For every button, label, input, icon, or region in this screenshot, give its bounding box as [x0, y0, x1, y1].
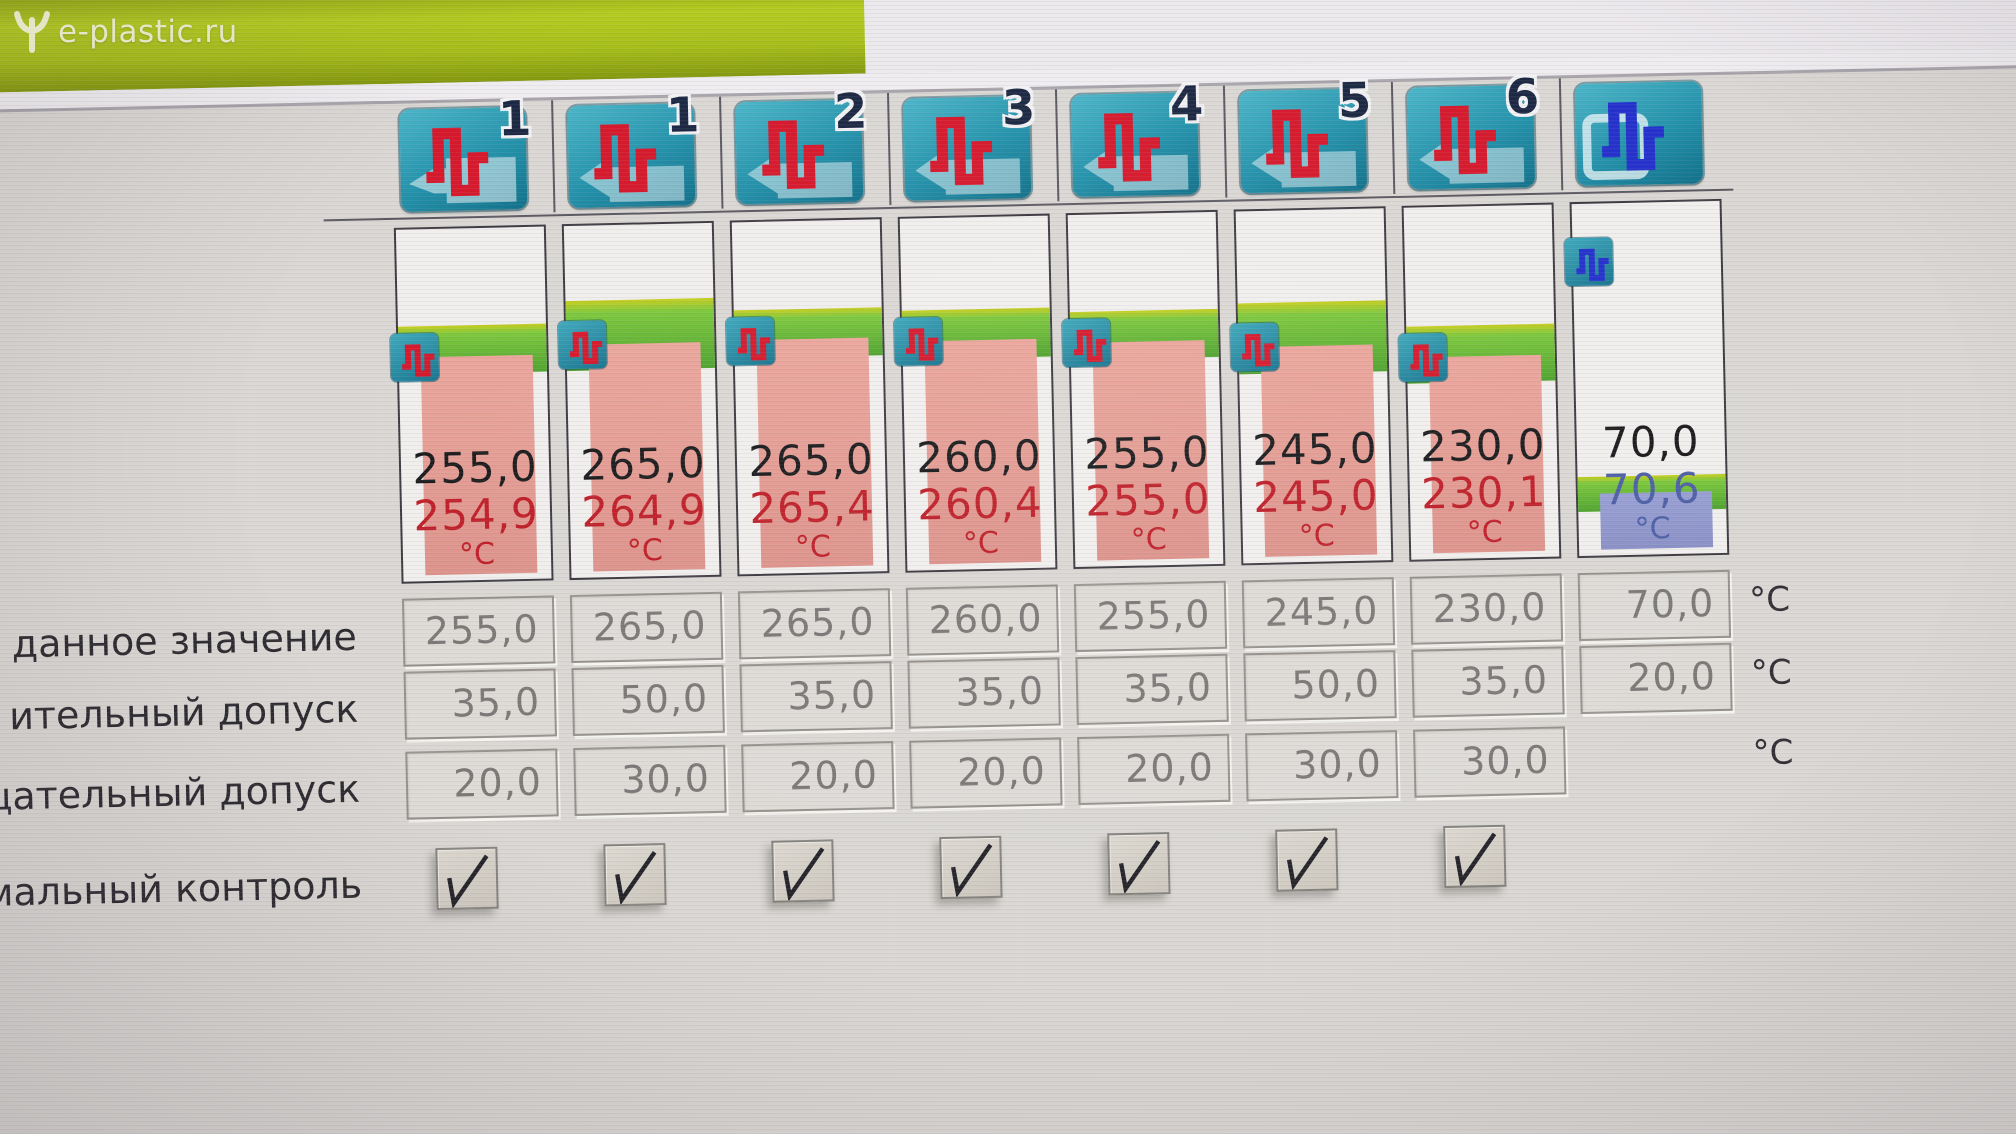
bar-readout: 265,0264,9°C	[569, 439, 720, 570]
neg-tolerance-field-zone-7[interactable]: 30,0	[1413, 726, 1566, 797]
actual-value-text: 70,6	[1577, 465, 1726, 514]
column-divider	[1391, 82, 1395, 194]
pos-tolerance-field-zone-4[interactable]: 35,0	[907, 657, 1060, 728]
heater-zone-icon-6[interactable]: 5	[1239, 89, 1367, 194]
unit-text: °C	[907, 525, 1056, 562]
heater-zone-icon-2[interactable]: 1	[567, 103, 695, 208]
unit-label-row-set: °C	[1749, 579, 1791, 620]
check-icon	[437, 849, 496, 908]
pos-tolerance-field-zone-3[interactable]: 35,0	[739, 661, 892, 732]
set-value-field-zone-5[interactable]: 255,0	[1074, 581, 1227, 652]
neg-tolerance-field-zone-2[interactable]: 30,0	[573, 745, 726, 816]
actual-value-text: 230,1	[1409, 469, 1558, 518]
check-icon	[1277, 830, 1336, 889]
set-value-text: 245,0	[1240, 424, 1389, 475]
neg-tolerance-field-zone-1[interactable]: 20,0	[405, 748, 558, 819]
zone-icon-cell-3: 2	[727, 97, 881, 206]
thermal-monitoring-checkbox-zone-7[interactable]	[1443, 825, 1506, 888]
icon-number-badge: 2	[833, 83, 868, 140]
heater-zone-icon-7[interactable]: 6	[1407, 85, 1535, 190]
set-value-field-zone-3[interactable]: 265,0	[738, 588, 891, 659]
zone-icon-cell-4: 3	[895, 94, 1049, 203]
bar-readout: 70,070,6°C	[1576, 417, 1727, 548]
pos-tolerance-field-zone-2[interactable]: 50,0	[571, 665, 724, 736]
zone-icon-cell-1: 1	[391, 105, 545, 214]
set-value-field-zone-4[interactable]: 260,0	[906, 584, 1059, 655]
pos-tolerance-field-zone-1[interactable]: 35,0	[404, 668, 557, 739]
hmi-screen: 1 255,0254,9°C255,035,020,0 1 265,0264,9…	[0, 0, 2016, 1134]
neg-tolerance-field-zone-4[interactable]: 20,0	[909, 737, 1062, 808]
check-icon	[773, 841, 832, 900]
column-divider	[551, 100, 555, 212]
temperature-bar-zone-4: 260,0260,4°C	[898, 214, 1058, 573]
icon-number-badge: 6	[1505, 69, 1540, 126]
thermal-monitoring-checkbox-zone-6[interactable]	[1275, 828, 1338, 891]
heater-badge-icon	[1398, 332, 1447, 381]
temperature-bar-zone-3: 265,0265,4°C	[730, 217, 890, 576]
actual-value-text: 245,0	[1241, 472, 1390, 521]
column-divider	[1559, 78, 1563, 190]
zone-icon-cell-7: 6	[1399, 83, 1553, 192]
zone-icon-cell-6: 5	[1231, 86, 1385, 195]
unit-text: °C	[739, 529, 888, 566]
column-divider	[1055, 89, 1059, 201]
heater-zone-icon-4[interactable]: 3	[903, 96, 1031, 201]
thermal-monitoring-checkbox-zone-1[interactable]	[435, 847, 498, 910]
pos-tolerance-field-zone-8[interactable]: 20,0	[1579, 643, 1732, 714]
cooling-badge-icon	[1564, 237, 1613, 286]
check-icon	[941, 838, 1000, 897]
photo-frame: 1 255,0254,9°C255,035,020,0 1 265,0264,9…	[0, 0, 2016, 1134]
thermal-monitoring-checkbox-zone-3[interactable]	[771, 839, 834, 902]
column-divider	[719, 97, 723, 209]
label-neg-tolerance: цательный допуск	[0, 766, 387, 819]
unit-text: °C	[1074, 522, 1223, 559]
bar-readout: 260,0260,4°C	[904, 432, 1055, 563]
heater-zone-icon-3[interactable]: 2	[735, 100, 863, 205]
cooling-zone-icon-8[interactable]	[1575, 81, 1703, 186]
zone-icon-cell-5: 4	[1063, 90, 1217, 199]
unit-label-row-pos: °C	[1750, 652, 1792, 693]
column-divider	[1223, 86, 1227, 198]
temperature-bar-zone-8: 70,070,6°C	[1570, 199, 1730, 558]
column-divider	[887, 93, 891, 205]
neg-tolerance-field-zone-3[interactable]: 20,0	[741, 741, 894, 812]
zone-icon-cell-2: 1	[559, 101, 713, 210]
temperature-bar-zone-1: 255,0254,9°C	[394, 225, 554, 584]
actual-value-text: 255,0	[1073, 476, 1222, 525]
neg-tolerance-field-zone-6[interactable]: 30,0	[1245, 730, 1398, 801]
set-value-field-zone-8[interactable]: 70,0	[1578, 570, 1731, 641]
pos-tolerance-field-zone-6[interactable]: 50,0	[1243, 650, 1396, 721]
temperature-bar-zone-7: 230,0230,1°C	[1402, 203, 1562, 562]
set-value-text: 260,0	[904, 432, 1053, 483]
neg-tolerance-field-zone-5[interactable]: 20,0	[1077, 734, 1230, 805]
label-thermal-monitoring: мальный контроль	[0, 862, 389, 915]
heater-zone-icon-1[interactable]: 1	[399, 107, 527, 212]
thermal-monitoring-checkbox-zone-5[interactable]	[1107, 832, 1170, 895]
pos-tolerance-field-zone-7[interactable]: 35,0	[1411, 646, 1564, 717]
label-set-value: данное значение	[0, 614, 383, 667]
unit-text: °C	[1242, 518, 1391, 555]
set-value-field-zone-6[interactable]: 245,0	[1242, 577, 1395, 648]
pos-tolerance-field-zone-5[interactable]: 35,0	[1075, 654, 1228, 725]
temperature-bar-zone-6: 245,0245,0°C	[1234, 206, 1394, 565]
icon-number-badge: 1	[497, 91, 532, 148]
set-value-text: 230,0	[1408, 421, 1557, 472]
bar-readout: 255,0254,9°C	[401, 443, 552, 574]
zone-icon-cell-8	[1567, 79, 1721, 188]
unit-text: °C	[403, 536, 552, 573]
bar-readout: 245,0245,0°C	[1240, 424, 1391, 555]
actual-value-text: 260,4	[906, 480, 1055, 529]
check-icon	[1109, 834, 1168, 893]
heater-badge-icon	[726, 316, 775, 365]
set-value-text: 70,0	[1576, 417, 1725, 468]
temperature-bar-zone-2: 265,0264,9°C	[562, 221, 722, 580]
unit-text: °C	[571, 533, 720, 570]
actual-value-text: 254,9	[402, 490, 551, 539]
heater-badge-icon	[894, 317, 943, 366]
heater-zone-icon-5[interactable]: 4	[1071, 92, 1199, 197]
actual-value-text: 265,4	[738, 483, 887, 532]
label-pos-tolerance: ительный допуск	[0, 686, 385, 739]
bar-readout: 255,0255,0°C	[1072, 428, 1223, 559]
temperature-bar-zone-5: 255,0255,0°C	[1066, 210, 1226, 569]
set-value-text: 255,0	[401, 443, 550, 494]
unit-text: °C	[1410, 514, 1559, 551]
icon-number-badge: 5	[1337, 72, 1372, 129]
set-value-field-zone-1[interactable]: 255,0	[402, 595, 555, 666]
set-value-text: 265,0	[736, 435, 885, 486]
set-value-text: 265,0	[569, 439, 718, 490]
unit-label-row-neg: °C	[1752, 732, 1794, 773]
check-icon	[1445, 827, 1504, 886]
bar-readout: 230,0230,1°C	[1408, 421, 1559, 552]
icon-number-badge: 3	[1001, 80, 1036, 137]
unit-text: °C	[1578, 511, 1727, 548]
watermark-logo-icon	[12, 10, 52, 54]
thermal-monitoring-checkbox-zone-4[interactable]	[939, 836, 1002, 899]
check-icon	[605, 845, 664, 904]
watermark: e-plastic.ru	[12, 10, 238, 54]
set-value-field-zone-7[interactable]: 230,0	[1410, 573, 1563, 644]
heater-badge-icon	[1230, 323, 1279, 372]
icon-number-badge: 4	[1169, 76, 1204, 133]
watermark-text: e-plastic.ru	[58, 14, 238, 50]
icon-number-badge: 1	[665, 87, 700, 144]
heater-badge-icon	[558, 320, 607, 369]
set-value-field-zone-2[interactable]: 265,0	[570, 592, 723, 663]
actual-value-text: 264,9	[570, 487, 719, 536]
set-value-text: 255,0	[1072, 428, 1221, 479]
heater-badge-icon	[1062, 318, 1111, 367]
heater-badge-icon	[390, 332, 439, 381]
bar-readout: 265,0265,4°C	[736, 435, 887, 566]
thermal-monitoring-checkbox-zone-2[interactable]	[603, 843, 666, 906]
